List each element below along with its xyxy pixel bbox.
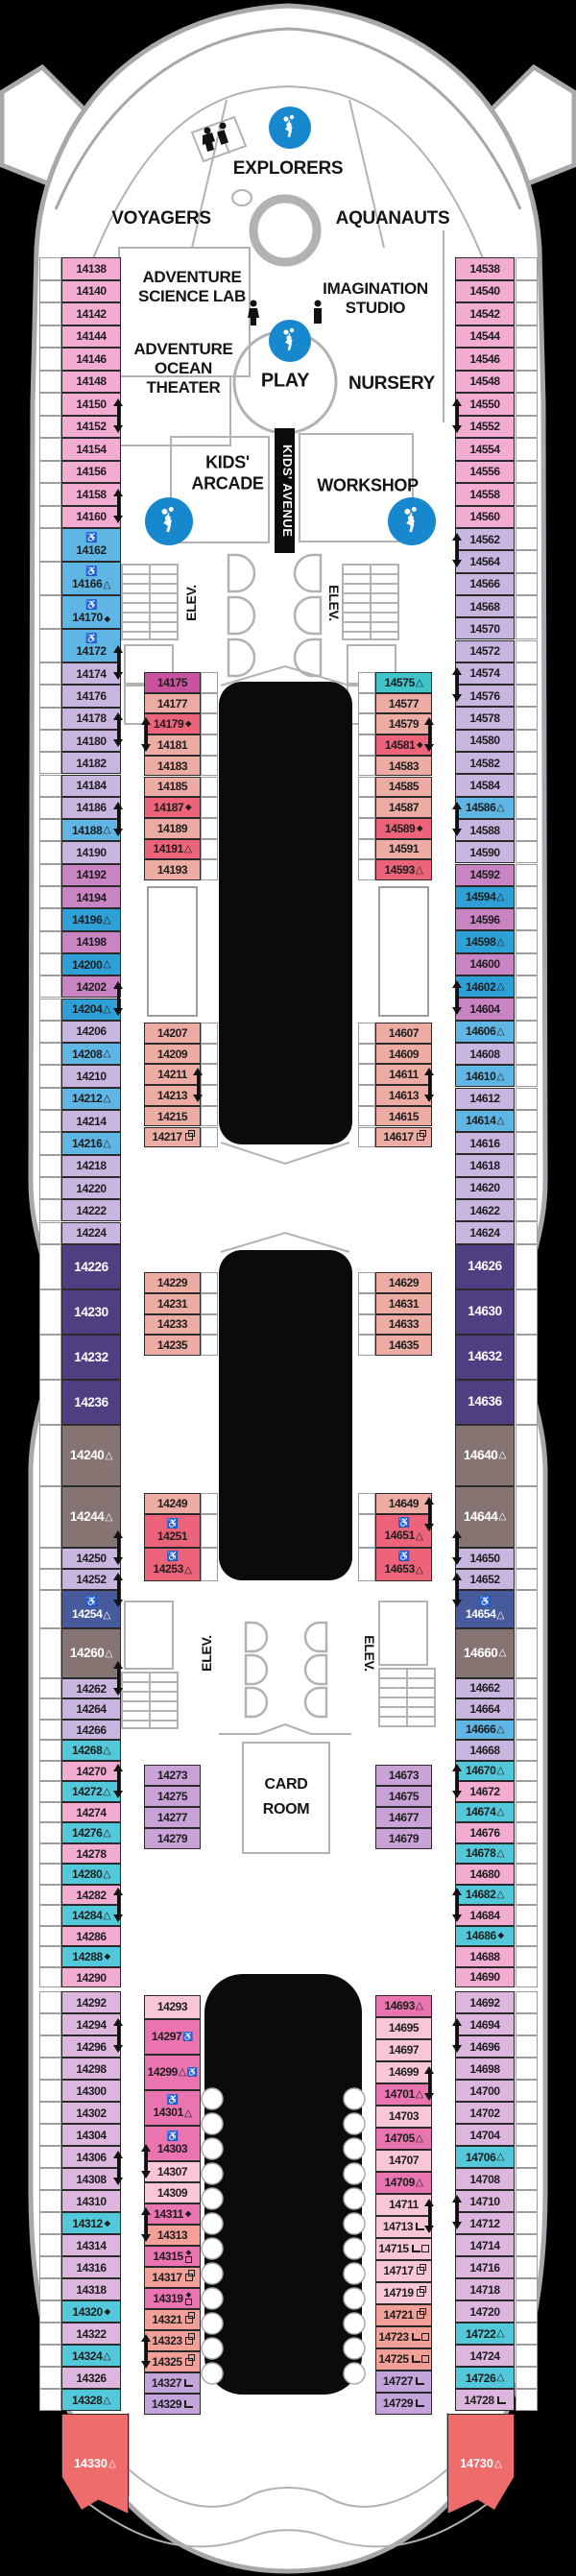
cabin-14724: 14724	[455, 2345, 515, 2367]
connecting-rooms-arrow-icon	[117, 808, 120, 830]
cabin-14688: 14688	[455, 1946, 515, 1967]
cabin-14704: 14704	[455, 2124, 515, 2146]
balcony-cell	[39, 2234, 61, 2256]
balcony-cell	[39, 371, 61, 394]
cabin-14264: 14264	[61, 1698, 121, 1720]
balcony-cell	[39, 1946, 61, 1967]
cabin-14729: 14729	[375, 2393, 432, 2415]
cabin-14154: 14154	[61, 438, 121, 461]
cabin-14584: 14584	[455, 774, 515, 796]
cabin-14566: 14566	[455, 573, 515, 595]
balcony-cell	[516, 1177, 538, 1199]
cabin-14720: 14720	[455, 2300, 515, 2323]
balcony-cell	[39, 1590, 61, 1628]
balcony-cell	[39, 1781, 61, 1802]
cabin-14562: 14562	[455, 528, 515, 550]
cabin-14193: 14193	[144, 859, 201, 880]
label-science-lab-2: SCIENCE LAB	[138, 287, 246, 306]
balcony-cell	[39, 1548, 61, 1569]
balcony-cell	[516, 797, 538, 819]
cabin-14550: 14550	[455, 393, 515, 416]
balcony-cell	[516, 1698, 538, 1720]
connecting-rooms-arrow-icon	[117, 1770, 120, 1792]
cabin-14275: 14275	[144, 1786, 201, 1807]
balcony-cell	[201, 756, 218, 777]
balcony-cell	[201, 713, 218, 734]
balcony-cell	[39, 1021, 61, 1043]
cabin-14226: 14226	[61, 1244, 121, 1289]
balcony-cell	[39, 730, 61, 752]
cabin-14288: 14288◆	[61, 1946, 121, 1967]
balcony-cell	[39, 280, 61, 303]
connecting-rooms-arrow-icon	[456, 1579, 459, 1601]
cabin-14676: 14676	[455, 1822, 515, 1843]
balcony-cell	[516, 348, 538, 371]
cabin-14690: 14690	[455, 1967, 515, 1988]
label-explorers: EXPLORERS	[233, 158, 344, 180]
balcony-cell	[516, 416, 538, 439]
corridor-voids	[204, 682, 362, 2395]
balcony-cell	[39, 302, 61, 325]
cabin-14703: 14703	[375, 2106, 432, 2128]
wheelchair-icon: ♿	[85, 567, 97, 577]
balcony-cell	[39, 257, 61, 280]
connecting-rooms-arrow-icon	[456, 405, 459, 426]
cabin-14716: 14716	[455, 2256, 515, 2278]
wheelchair-icon: ♿	[397, 1553, 409, 1562]
cabin-14189: 14189	[144, 818, 201, 839]
balcony-cell	[39, 1199, 61, 1221]
balcony-cell	[516, 1043, 538, 1065]
balcony-cell	[516, 998, 538, 1020]
balcony-cell	[39, 1822, 61, 1843]
cabin-14206: 14206	[61, 1021, 121, 1043]
cabin-14629: 14629	[375, 1272, 432, 1293]
cabin-14596: 14596	[455, 908, 515, 930]
balcony-cell	[39, 708, 61, 730]
cabin-14326: 14326	[61, 2367, 121, 2389]
cabin-14220: 14220	[61, 1177, 121, 1199]
connecting-rooms-arrow-icon	[428, 1074, 431, 1095]
balcony-cell	[39, 416, 61, 439]
cabin-14286: 14286	[61, 1926, 121, 1947]
balcony-cell	[516, 1154, 538, 1176]
cabin-14308: 14308	[61, 2168, 121, 2190]
cabin-14542: 14542	[455, 302, 515, 325]
cabin-14284: 14284△	[61, 1905, 121, 1926]
cabin-14185: 14185	[144, 777, 201, 798]
balcony-cell	[39, 483, 61, 506]
cabin-14714: 14714	[455, 2234, 515, 2256]
balcony-cell	[39, 2256, 61, 2278]
cabin-14140: 14140	[61, 280, 121, 303]
balcony-cell	[201, 1044, 218, 1065]
cabin-14301: ♿14301△	[144, 2090, 201, 2126]
balcony-cell	[39, 1628, 61, 1678]
balcony-cell	[39, 2035, 61, 2058]
balcony-cell	[516, 2367, 538, 2389]
cabin-14582: 14582	[455, 752, 515, 774]
cabin-14316: 14316	[61, 2256, 121, 2278]
balcony-cell	[516, 752, 538, 774]
balcony-cell	[516, 1864, 538, 1885]
balcony-cell	[39, 1486, 61, 1548]
cabin-14631: 14631	[375, 1293, 432, 1314]
connecting-rooms-arrow-icon	[456, 987, 459, 1008]
balcony-cell	[516, 1335, 538, 1380]
cabin-14174: 14174	[61, 662, 121, 685]
cabin-14306: 14306	[61, 2146, 121, 2168]
balcony-cell	[39, 1425, 61, 1486]
cabin-14579: 14579	[375, 713, 432, 734]
cabin-14696: 14696	[455, 2035, 515, 2058]
balcony-cell	[358, 1023, 375, 1044]
balcony-cell	[39, 562, 61, 595]
balcony-cell	[39, 2168, 61, 2190]
cabin-14722: 14722△	[455, 2323, 515, 2345]
cabin-14705: 14705△	[375, 2128, 432, 2150]
balcony-cell	[39, 1905, 61, 1926]
cabin-14586: 14586△	[455, 797, 515, 819]
cabin-14328: 14328△	[61, 2389, 121, 2411]
cabin-14540: 14540	[455, 280, 515, 303]
balcony-cell	[39, 1043, 61, 1065]
cabin-14727: 14727	[375, 2371, 432, 2393]
wheelchair-icon: ♿	[166, 1520, 178, 1529]
balcony-cell	[358, 734, 375, 756]
connecting-rooms-arrow-icon	[428, 1504, 431, 1525]
balcony-cell	[516, 2080, 538, 2102]
cabin-14558: 14558	[455, 483, 515, 506]
balcony-cell	[516, 1569, 538, 1590]
balcony-cell	[516, 438, 538, 461]
label-voyagers: VOYAGERS	[111, 208, 211, 229]
cabin-14303: ♿14303	[144, 2126, 201, 2161]
ship-deck-plan: EXPLORERS VOYAGERS AQUANAUTS ADVENTURE S…	[0, 0, 576, 2576]
cabin-14249: 14249	[144, 1493, 201, 1514]
wheelchair-icon: ♿	[187, 2068, 198, 2077]
balcony-cell	[516, 2212, 538, 2234]
cabin-14268: 14268△	[61, 1740, 121, 1761]
balcony-cell	[201, 1064, 218, 1085]
cabin-14252: 14252	[61, 1569, 121, 1590]
connecting-rooms-arrow-icon	[456, 1537, 459, 1558]
balcony-cell	[358, 713, 375, 734]
cabin-14178: 14178	[61, 708, 121, 730]
cabin-14296: 14296	[61, 2035, 121, 2058]
cabin-14293: 14293	[144, 1995, 201, 2019]
cabin-14706: 14706△	[455, 2146, 515, 2168]
balcony-cell	[39, 1678, 61, 1699]
balcony-cell	[516, 975, 538, 998]
interior-void	[378, 886, 429, 1017]
cabin-14152: 14152	[61, 416, 121, 439]
connecting-rooms-arrow-icon	[456, 1770, 459, 1792]
wheelchair-icon: ♿	[166, 2096, 178, 2106]
cabin-14723: 14723	[375, 2326, 432, 2348]
cabin-14204: 14204△	[61, 999, 121, 1021]
connecting-rooms-arrow-icon	[428, 724, 431, 745]
balcony-cell	[201, 1023, 218, 1044]
balcony-cell	[516, 841, 538, 863]
balcony-cell	[39, 393, 61, 416]
label-theater-3: THEATER	[147, 378, 221, 397]
connecting-rooms-arrow-icon	[197, 1074, 200, 1095]
cabin-14177: 14177	[144, 693, 201, 714]
connecting-rooms-arrow-icon	[456, 540, 459, 561]
balcony-cell	[39, 2190, 61, 2212]
balcony-cell	[358, 1293, 375, 1314]
cabin-14649: 14649	[375, 1493, 432, 1514]
label-elevator-fwd-left: ELEV.	[183, 585, 199, 621]
balcony-cell	[516, 908, 538, 930]
wheelchair-icon: ♿	[166, 2132, 178, 2142]
cabin-14253: ♿14253△	[144, 1548, 201, 1581]
connecting-rooms-arrow-icon	[117, 652, 120, 673]
cabin-14575: 14575△	[375, 672, 432, 693]
cabin-14670: 14670△	[455, 1761, 515, 1782]
label-elevator-mid-right: ELEV.	[362, 1635, 377, 1672]
cabin-14589: 14589◆	[375, 818, 432, 839]
cabin-14712: 14712	[455, 2212, 515, 2234]
cabin-14590: 14590	[455, 841, 515, 863]
connecting-rooms-arrow-icon	[456, 1894, 459, 1915]
cabin-14695: 14695	[375, 2017, 432, 2039]
cabin-14713: 14713	[375, 2216, 432, 2238]
balcony-cell	[39, 348, 61, 371]
balcony-cell	[39, 1088, 61, 1110]
cabin-14190: 14190	[61, 841, 121, 863]
wheelchair-icon: ♿	[85, 601, 97, 611]
cabin-14313: 14313	[144, 2225, 201, 2246]
cabin-14626: 14626	[455, 1244, 515, 1289]
cabin-14233: 14233	[144, 1314, 201, 1336]
balcony-cell	[358, 1106, 375, 1127]
balcony-cell	[39, 1864, 61, 1885]
cabin-14664: 14664	[455, 1698, 515, 1720]
cabin-14212: 14212△	[61, 1088, 121, 1110]
cabin-14617: 14617	[375, 1127, 432, 1148]
balcony-cell	[358, 1514, 375, 1548]
balcony-cell	[516, 1905, 538, 1926]
cabin-14612: 14612	[455, 1088, 515, 1110]
label-arcade-1: KIDS'	[205, 453, 250, 473]
cabin-14546: 14546	[455, 348, 515, 371]
label-imagination-2: STUDIO	[346, 299, 405, 318]
cabin-14213: 14213	[144, 1085, 201, 1106]
balcony-cell	[201, 734, 218, 756]
balcony-cell	[516, 1110, 538, 1132]
cabin-14624: 14624	[455, 1221, 515, 1243]
cabin-14156: 14156	[61, 461, 121, 484]
balcony-cell	[516, 595, 538, 617]
balcony-cell	[358, 672, 375, 693]
balcony-cell	[516, 953, 538, 975]
balcony-cell	[39, 1289, 61, 1335]
balcony-cell	[516, 1021, 538, 1043]
balcony-cell	[516, 1967, 538, 1988]
cabin-14325: 14325	[144, 2351, 201, 2372]
balcony-cell	[358, 756, 375, 777]
cabin-14183: 14183	[144, 756, 201, 777]
label-play: PLAY	[261, 371, 309, 393]
cabin-14244: 14244△	[61, 1486, 121, 1548]
cabin-14572: 14572	[455, 640, 515, 662]
cabin-14662: 14662	[455, 1678, 515, 1699]
cabin-14630: 14630	[455, 1289, 515, 1335]
cabin-14327: 14327	[144, 2372, 201, 2394]
connecting-rooms-arrow-icon	[117, 988, 120, 1009]
cabin-14187: 14187◆	[144, 797, 201, 818]
balcony-cell	[201, 1272, 218, 1293]
cabin-14701: 14701△	[375, 2083, 432, 2106]
cabin-14162: ♿14162	[61, 528, 121, 562]
balcony-cell	[39, 2013, 61, 2035]
balcony-cell	[516, 2345, 538, 2367]
cabin-14250: 14250	[61, 1548, 121, 1569]
balcony-cell	[201, 693, 218, 714]
cabin-14568: 14568	[455, 595, 515, 617]
cabin-14622: 14622	[455, 1199, 515, 1221]
cabin-14276: 14276△	[61, 1822, 121, 1843]
balcony-cell	[516, 864, 538, 886]
cabin-14544: 14544	[455, 325, 515, 349]
balcony-cell	[39, 2058, 61, 2080]
balcony-cell	[516, 1132, 538, 1154]
cabin-14230: 14230	[61, 1289, 121, 1335]
balcony-cell	[516, 930, 538, 952]
balcony-cell	[39, 1132, 61, 1154]
cabin-14672: 14672	[455, 1781, 515, 1802]
cabin-14214: 14214	[61, 1110, 121, 1132]
balcony-cell	[516, 1199, 538, 1221]
balcony-cell	[201, 839, 218, 860]
cabin-14302: 14302	[61, 2102, 121, 2124]
cabin-14692: 14692	[455, 1991, 515, 2013]
balcony-cell	[516, 1822, 538, 1843]
cabin-14194: 14194	[61, 886, 121, 908]
balcony-cell	[358, 1314, 375, 1336]
balcony-cell	[39, 953, 61, 975]
balcony-cell	[358, 1272, 375, 1293]
balcony-cell	[39, 1967, 61, 1988]
cabin-14323: 14323	[144, 2330, 201, 2351]
cabin-14200: 14200△	[61, 953, 121, 975]
balcony-cell	[516, 774, 538, 796]
cabin-14176: 14176	[61, 685, 121, 707]
cabin-14613: 14613	[375, 1085, 432, 1106]
balcony-cell	[516, 393, 538, 416]
balcony-cell	[358, 1085, 375, 1106]
balcony-cell	[516, 2102, 538, 2124]
connecting-rooms-arrow-icon	[117, 405, 120, 426]
balcony-cell	[39, 1335, 61, 1380]
connecting-rooms-arrow-icon	[117, 1894, 120, 1915]
balcony-cell	[516, 1380, 538, 1425]
connecting-rooms-arrow-icon	[145, 724, 148, 745]
balcony-cell	[358, 1127, 375, 1148]
cabin-14222: 14222	[61, 1199, 121, 1221]
cabin-14314: 14314	[61, 2234, 121, 2256]
cabin-14317: 14317	[144, 2267, 201, 2288]
cabin-14181: 14181	[144, 734, 201, 756]
cabin-14684: 14684	[455, 1905, 515, 1926]
cabin-14298: 14298	[61, 2058, 121, 2080]
cabin-14651: ♿14651△	[375, 1514, 432, 1548]
cabin-14726: 14726△	[455, 2367, 515, 2389]
cabin-14216: 14216△	[61, 1132, 121, 1154]
cabin-14699: 14699	[375, 2061, 432, 2083]
label-aquanauts: AQUANAUTS	[336, 208, 450, 229]
balcony-cell	[39, 752, 61, 774]
balcony-cell	[516, 1740, 538, 1761]
cabin-14182: 14182	[61, 752, 121, 774]
balcony-cell	[358, 1548, 375, 1581]
cabin-14280: 14280△	[61, 1864, 121, 1885]
cabin-14311: 14311◆	[144, 2203, 201, 2225]
balcony-cell	[516, 1628, 538, 1678]
connecting-rooms-arrow-icon	[145, 2151, 148, 2172]
cabin-14235: 14235	[144, 1335, 201, 1356]
cabin-14538: 14538	[455, 257, 515, 280]
cabin-14210: 14210	[61, 1065, 121, 1087]
cabin-14587: 14587	[375, 797, 432, 818]
balcony-cell	[516, 707, 538, 729]
cabin-14300: 14300	[61, 2080, 121, 2102]
cabin-14682: 14682△	[455, 1885, 515, 1906]
cabin-14702: 14702	[455, 2102, 515, 2124]
wheelchair-icon: ♿	[182, 2033, 193, 2041]
balcony-cell	[201, 1335, 218, 1356]
cabin-14721: 14721	[375, 2304, 432, 2326]
cabin-14320: 14320◆	[61, 2300, 121, 2323]
balcony-cell	[516, 2300, 538, 2323]
balcony-cell	[516, 1244, 538, 1289]
balcony-cell	[201, 1493, 218, 1514]
cabin-14615: 14615	[375, 1106, 432, 1127]
balcony-cell	[39, 864, 61, 886]
cabin-14144: 14144	[61, 325, 121, 349]
balcony-cell	[39, 1110, 61, 1132]
cabin-14564: 14564	[455, 550, 515, 572]
balcony-cell	[201, 818, 218, 839]
balcony-cell	[516, 550, 538, 572]
balcony-cell	[516, 1486, 538, 1548]
cabin-14209: 14209	[144, 1044, 201, 1065]
cabin-14231: 14231	[144, 1293, 201, 1314]
cabin-14548: 14548	[455, 371, 515, 394]
balcony-cell	[516, 1425, 538, 1486]
balcony-cell	[516, 2124, 538, 2146]
balcony-cell	[39, 2323, 61, 2345]
cabin-14160: 14160	[61, 506, 121, 529]
cabin-14170: ♿14170◆	[61, 595, 121, 629]
wheelchair-icon: ♿	[85, 635, 97, 644]
cabin-14680: 14680	[455, 1864, 515, 1885]
balcony-cell	[516, 573, 538, 595]
balcony-cell	[516, 2035, 538, 2058]
cabin-14697: 14697	[375, 2039, 432, 2061]
connecting-rooms-arrow-icon	[145, 2341, 148, 2362]
balcony-cell	[516, 371, 538, 394]
balcony-cell	[39, 1177, 61, 1199]
balcony-cell	[39, 506, 61, 529]
balcony-cell	[39, 1720, 61, 1741]
cabin-14581: 14581◆	[375, 734, 432, 756]
cabin-14576: 14576	[455, 685, 515, 707]
balcony-cell	[516, 1946, 538, 1967]
cabin-14166: ♿14166△	[61, 562, 121, 595]
